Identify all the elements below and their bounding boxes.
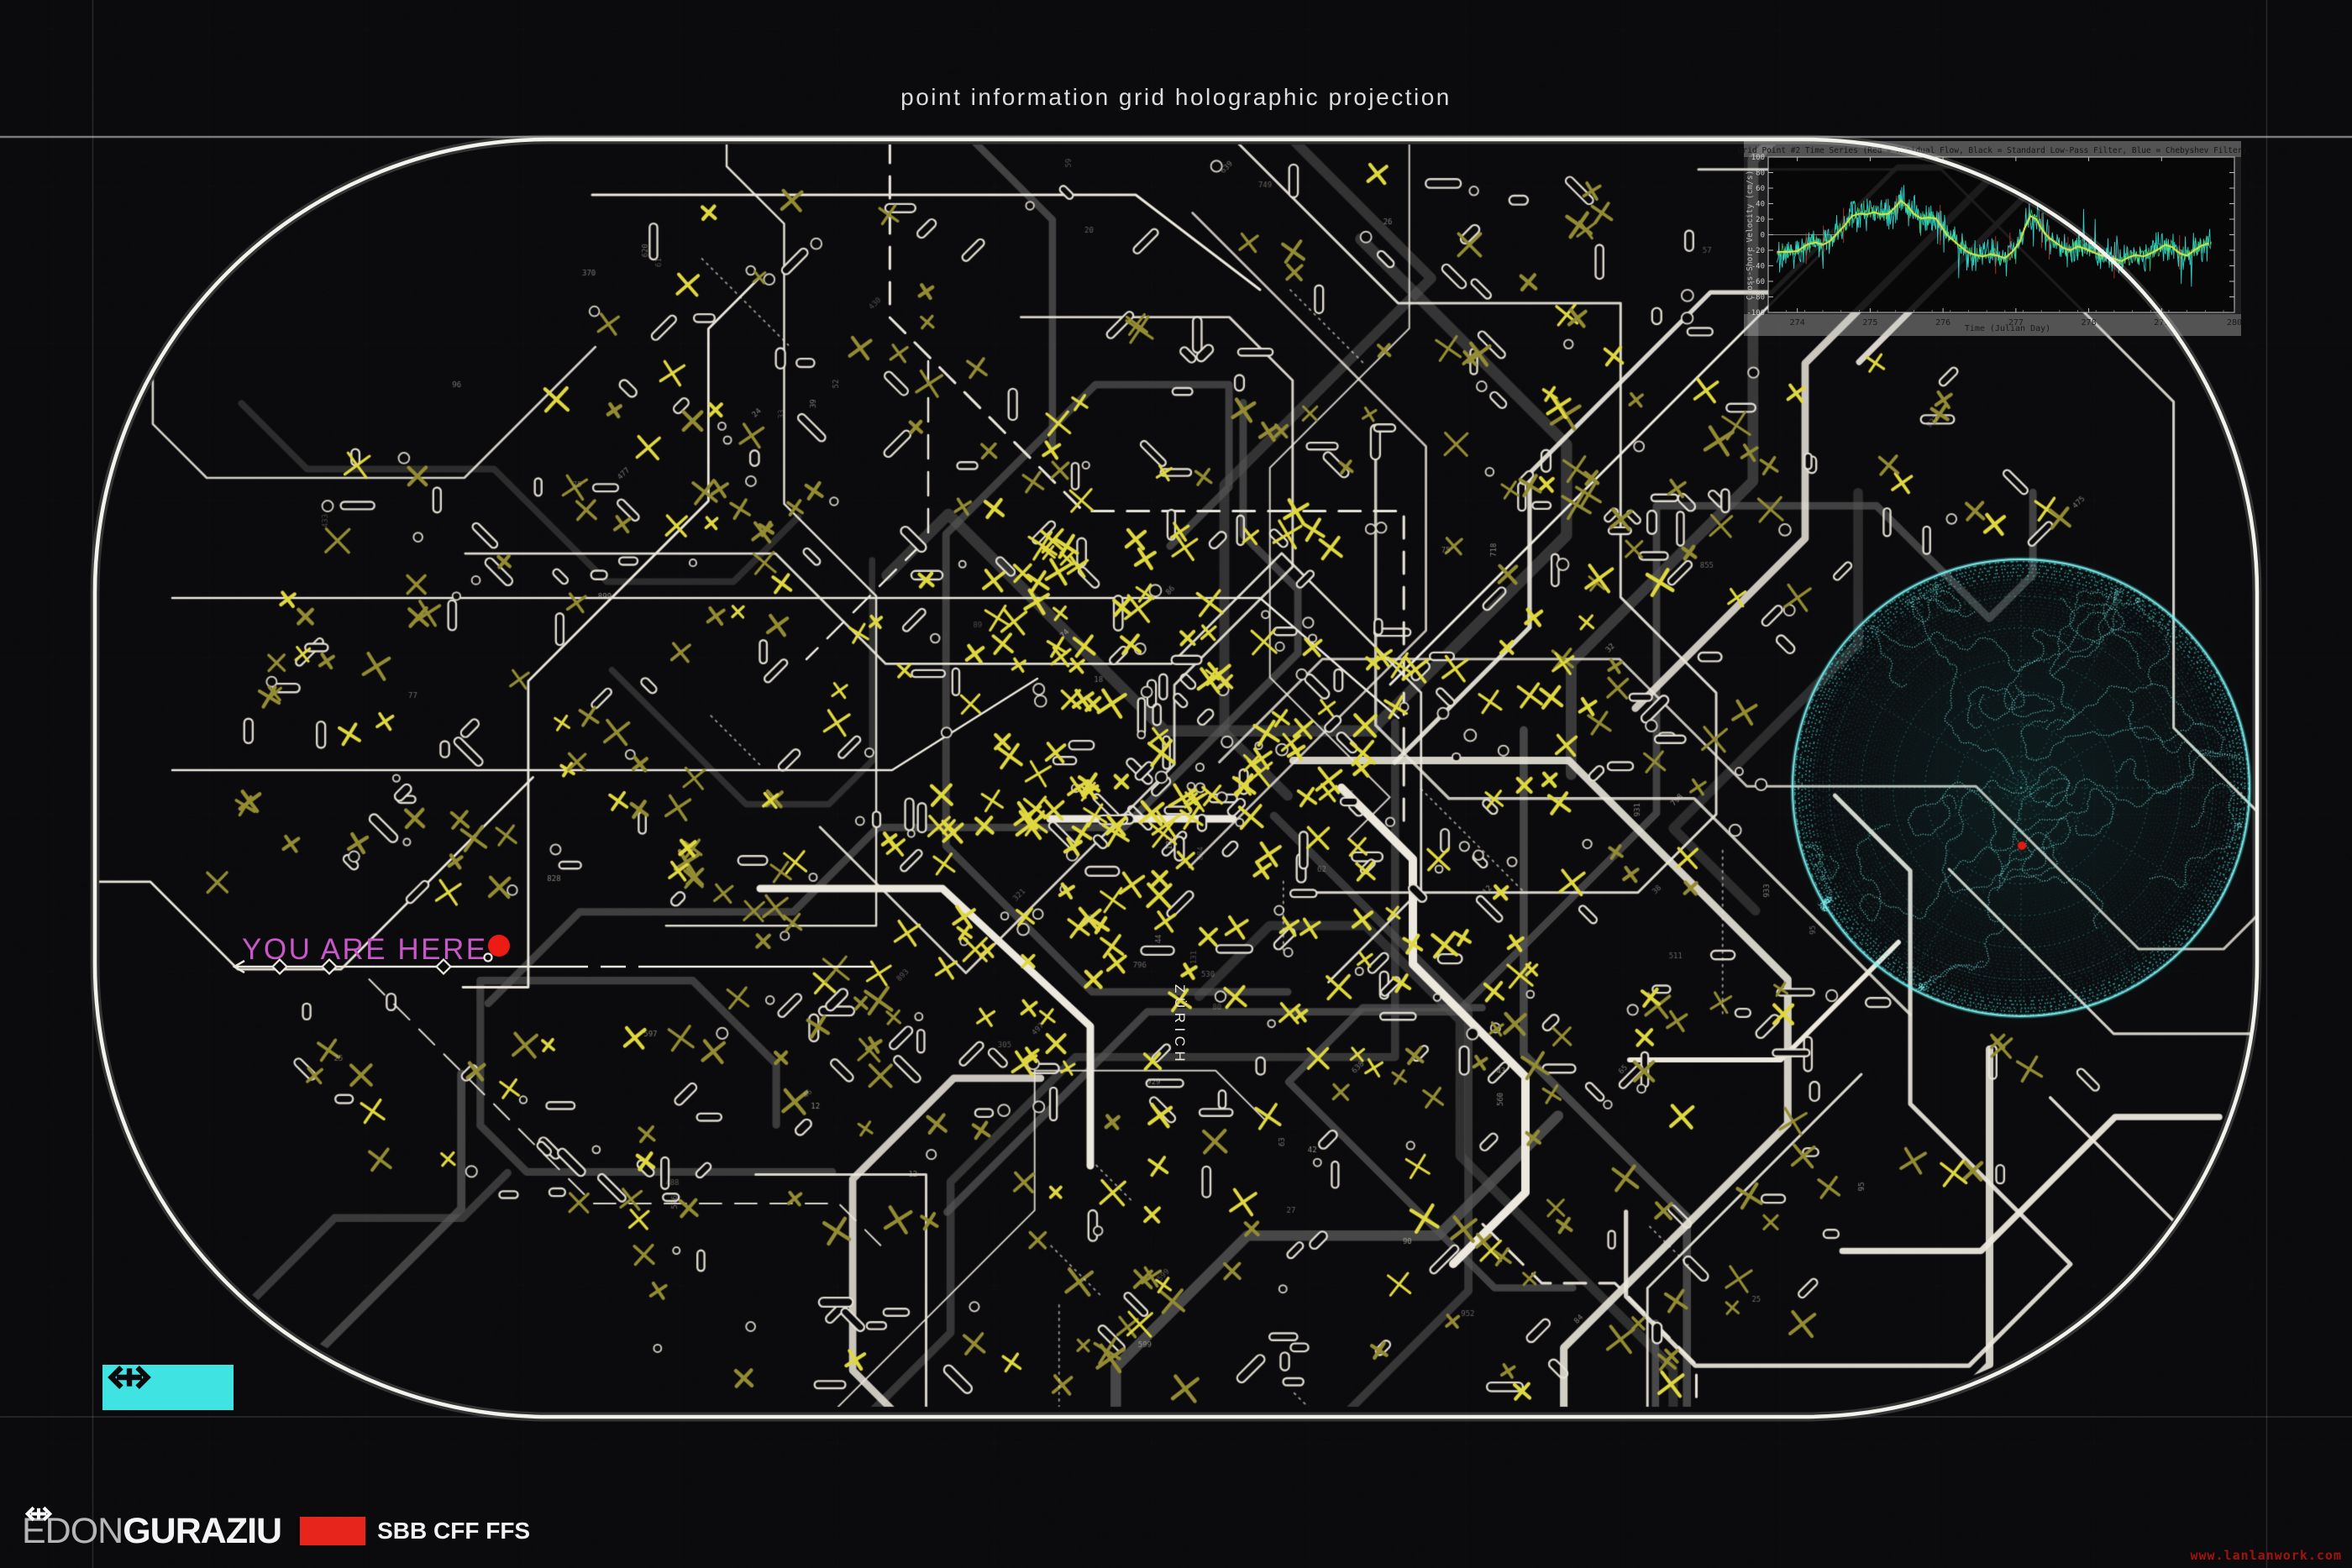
footer-credits: EDON GURAZIU SBB CFF FFS [22,1506,530,1556]
watermark: www.lanlanwork.com [2190,1548,2342,1563]
sbb-logo-box [102,1365,234,1410]
brand-text: SBB CFF FFS [377,1518,530,1544]
page-title: point information grid holographic proje… [0,84,2352,111]
author-name-light: EDON [22,1511,123,1552]
wireframe-globe [1793,559,2250,1016]
holographic-projection-screen: Grid Point #2 Time Series (Red = Residua… [0,0,2352,1568]
author-name-bold: GURAZIU [123,1511,281,1552]
sbb-brand-logo [300,1517,365,1545]
sbb-double-arrow-icon [102,1365,156,1390]
